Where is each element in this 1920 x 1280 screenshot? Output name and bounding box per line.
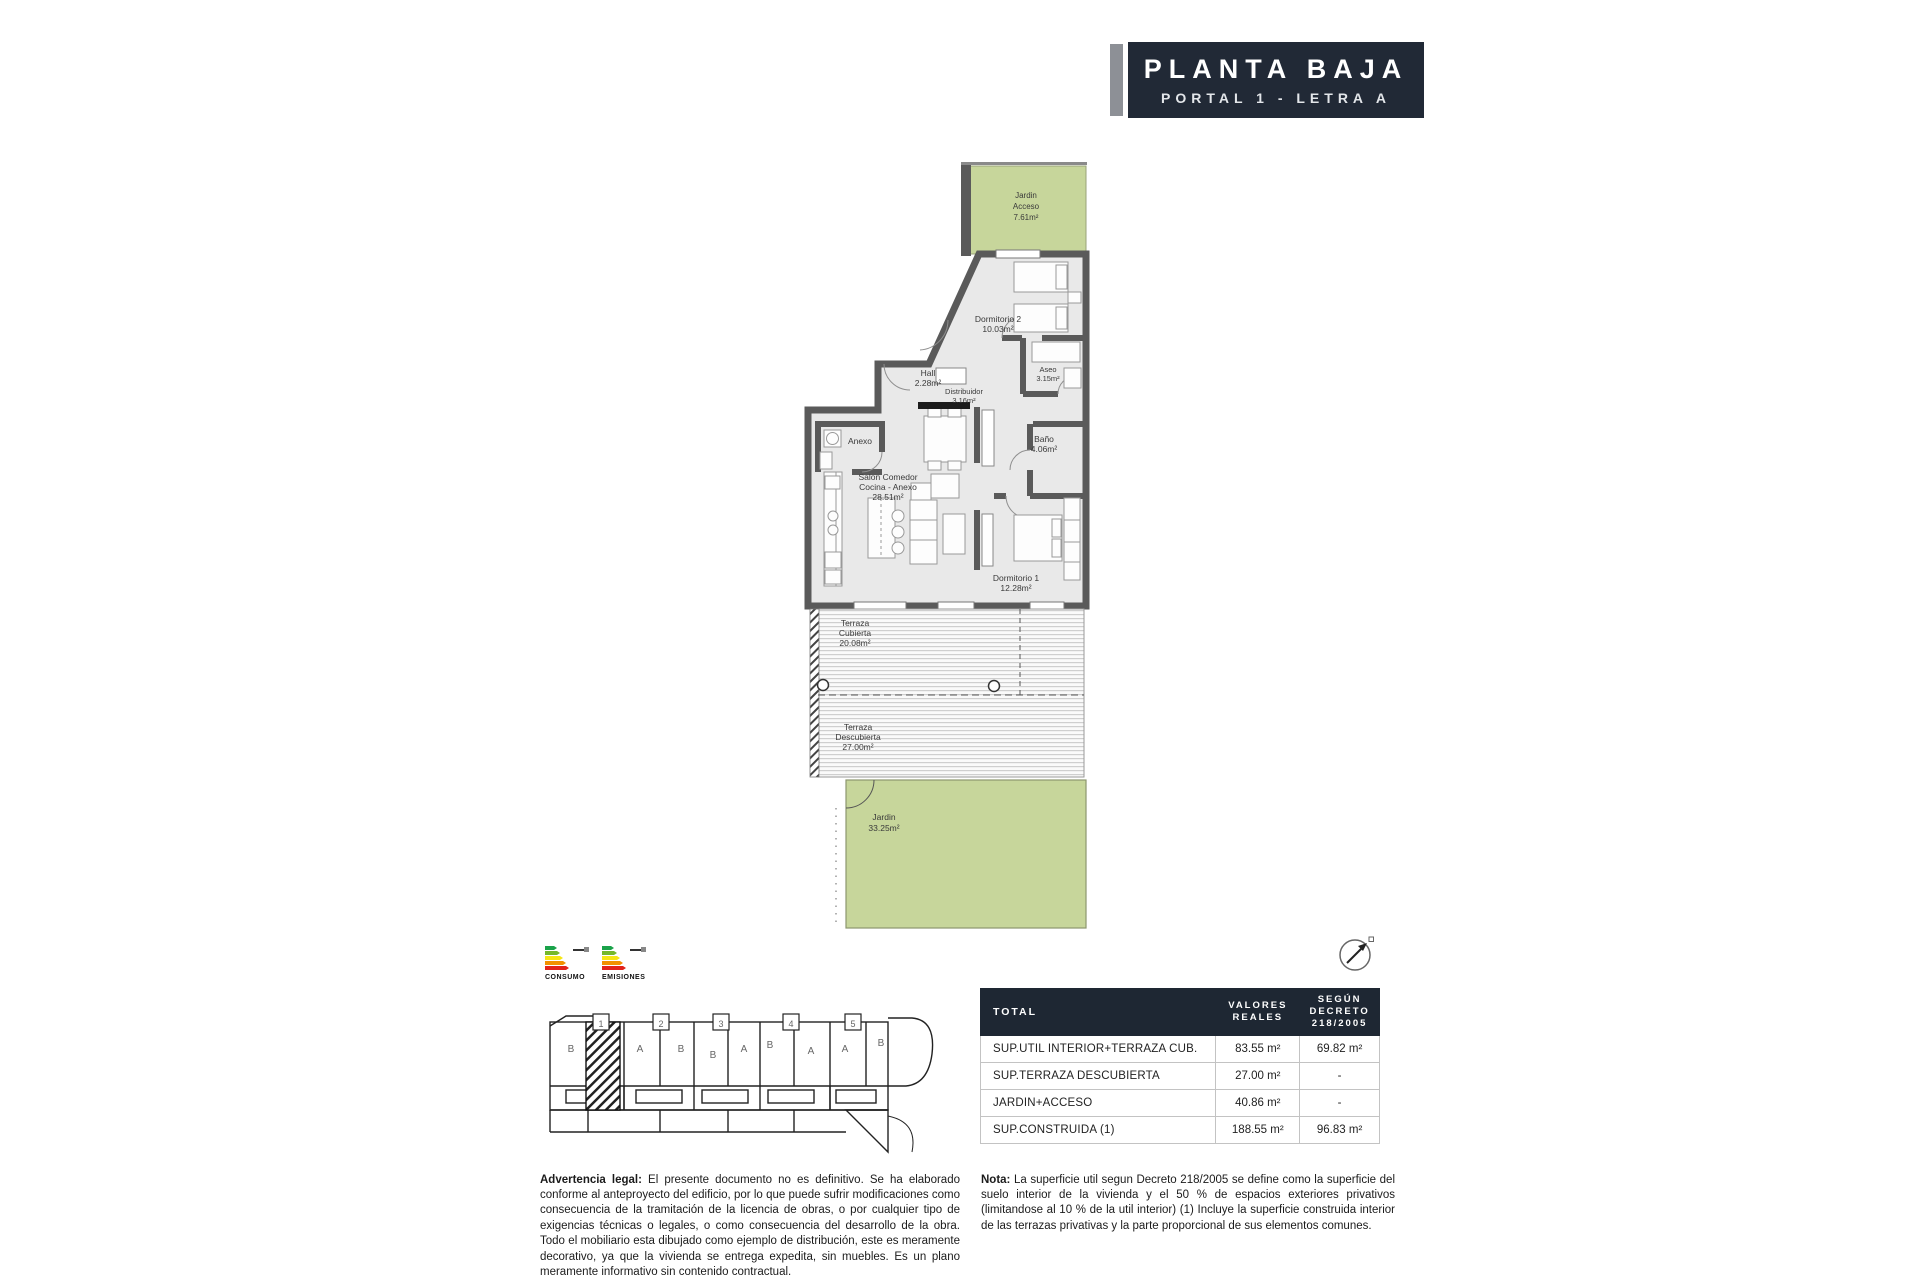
header-line: SEGÚN <box>1304 994 1375 1006</box>
portal-number: 5 <box>850 1019 855 1029</box>
portal-number: 4 <box>788 1019 793 1029</box>
table-header-row: TOTAL VALORES REALES SEGÚN DECRETO 218/2… <box>981 989 1380 1036</box>
room-area: 2.28m² <box>915 378 942 388</box>
room-area: 3.16m² <box>952 396 976 405</box>
unit-letter: B <box>568 1044 575 1055</box>
row-decreto-value: - <box>1300 1062 1380 1089</box>
room-label: Terraza <box>844 722 873 732</box>
row-real-value: 27.00 m² <box>1216 1062 1300 1089</box>
room-label: Dormitorio 2 <box>975 314 1022 324</box>
room-label: Jardin <box>1015 191 1037 200</box>
room-label: Aseo <box>1039 365 1056 374</box>
legal-disclaimer: Advertencia legal: El presente documento… <box>540 1173 960 1280</box>
header-line: 218/2005 <box>1304 1018 1375 1030</box>
room-label: Cocina - Anexo <box>859 482 917 492</box>
north-compass-icon <box>1334 930 1380 976</box>
energy-emisiones-label: EMISIONES <box>602 974 656 981</box>
portal-number: 1 <box>598 1019 603 1029</box>
row-real-value: 83.55 m² <box>1216 1035 1300 1062</box>
unit-letter: A <box>741 1044 748 1055</box>
room-label: Descubierta <box>835 732 881 742</box>
energy-indicator-icon <box>573 949 584 951</box>
energy-rating-consumo: CONSUMO <box>545 946 599 996</box>
table-row: SUP.TERRAZA DESCUBIERTA 27.00 m² - <box>981 1062 1380 1089</box>
areas-table: TOTAL VALORES REALES SEGÚN DECRETO 218/2… <box>980 988 1380 1144</box>
energy-rating-emisiones: EMISIONES <box>602 946 656 996</box>
unit-letter: B <box>767 1040 774 1051</box>
energy-consumo-label: CONSUMO <box>545 974 599 981</box>
portal-number: 2 <box>658 1019 663 1029</box>
legal-body: El presente documento no es definitivo. … <box>540 1174 960 1278</box>
row-label: SUP.UTIL INTERIOR+TERRAZA CUB. <box>981 1035 1216 1062</box>
header-segun-decreto: SEGÚN DECRETO 218/2005 <box>1300 989 1380 1036</box>
room-label: Baño <box>1034 434 1054 444</box>
unit-letter: A <box>808 1046 815 1057</box>
legal-lead: Advertencia legal: <box>540 1174 642 1186</box>
unit-letter: B <box>878 1038 885 1049</box>
unit-letter: A <box>637 1044 644 1055</box>
room-area: 7.61m² <box>1014 213 1039 222</box>
room-label: Distribuidor <box>945 387 983 396</box>
row-real-value: 40.86 m² <box>1216 1089 1300 1116</box>
portal-number: 3 <box>718 1019 723 1029</box>
energy-scale-icon <box>545 946 599 970</box>
table-row: SUP.CONSTRUIDA (1) 188.55 m² 96.83 m² <box>981 1116 1380 1143</box>
room-label: Cubierta <box>839 628 871 638</box>
header-line: VALORES <box>1220 1000 1295 1012</box>
brochure-page: PLANTA BAJA PORTAL 1 - LETRA A Jardin Ac… <box>0 0 1920 1280</box>
unit-letter: A <box>842 1044 849 1055</box>
note-text: Nota: La superficie util segun Decreto 2… <box>981 1173 1395 1235</box>
row-decreto-value: 69.82 m² <box>1300 1035 1380 1062</box>
row-decreto-value: 96.83 m² <box>1300 1116 1380 1143</box>
highlighted-unit <box>586 1022 620 1110</box>
note-body: La superficie util segun Decreto 218/200… <box>981 1174 1395 1232</box>
title-accent-bar <box>1110 44 1123 116</box>
table-row: SUP.UTIL INTERIOR+TERRAZA CUB. 83.55 m² … <box>981 1035 1380 1062</box>
terraces: Terraza Cubierta 20.08m² Terraza Descubi… <box>810 609 1084 777</box>
room-label: Hall <box>921 368 936 378</box>
room-label: Terraza <box>841 618 870 628</box>
page-title: PLANTA BAJA <box>1144 54 1409 85</box>
table-row: JARDIN+ACCESO 40.86 m² - <box>981 1089 1380 1116</box>
room-area: 10.03m² <box>982 324 1013 334</box>
room-area: 4.06m² <box>1031 444 1058 454</box>
row-label: SUP.TERRAZA DESCUBIERTA <box>981 1062 1216 1089</box>
row-label: JARDIN+ACCESO <box>981 1089 1216 1116</box>
row-decreto-value: - <box>1300 1089 1380 1116</box>
energy-scale-icon <box>602 946 656 970</box>
title-block: PLANTA BAJA PORTAL 1 - LETRA A <box>1128 42 1424 118</box>
room-label: Jardin <box>872 812 895 822</box>
unit-letter: B <box>710 1050 717 1061</box>
room-area: 27.00m² <box>842 742 873 752</box>
unit-letter: B <box>678 1044 685 1055</box>
room-area: 28.51m² <box>872 492 903 502</box>
row-label: SUP.CONSTRUIDA (1) <box>981 1116 1216 1143</box>
room-jardin: Jardin 33.25m² <box>836 780 1086 928</box>
row-real-value: 188.55 m² <box>1216 1116 1300 1143</box>
room-jardin-acceso: Jardin Acceso 7.61m² <box>961 162 1087 256</box>
floor-plan: Jardin Acceso 7.61m² <box>798 158 1098 938</box>
energy-indicator-icon <box>630 949 641 951</box>
header-line: REALES <box>1220 1012 1295 1024</box>
room-label: Acceso <box>1013 202 1040 211</box>
room-area: 20.08m² <box>839 638 870 648</box>
room-area: 3.15m² <box>1036 374 1060 383</box>
room-area: 12.28m² <box>1000 583 1031 593</box>
header-line: DECRETO <box>1304 1006 1375 1018</box>
note-lead: Nota: <box>981 1174 1010 1186</box>
site-key-plan: 1 2 3 4 5 B A B B A B A A B <box>536 990 946 1160</box>
room-area: 33.25m² <box>868 823 899 833</box>
room-label: Dormitorio 1 <box>993 573 1040 583</box>
header-valores-reales: VALORES REALES <box>1216 989 1300 1036</box>
room-label: Anexo <box>848 436 872 446</box>
header-total: TOTAL <box>981 989 1216 1036</box>
room-label: Salon Comedor <box>858 472 917 482</box>
page-subtitle: PORTAL 1 - LETRA A <box>1161 90 1391 106</box>
